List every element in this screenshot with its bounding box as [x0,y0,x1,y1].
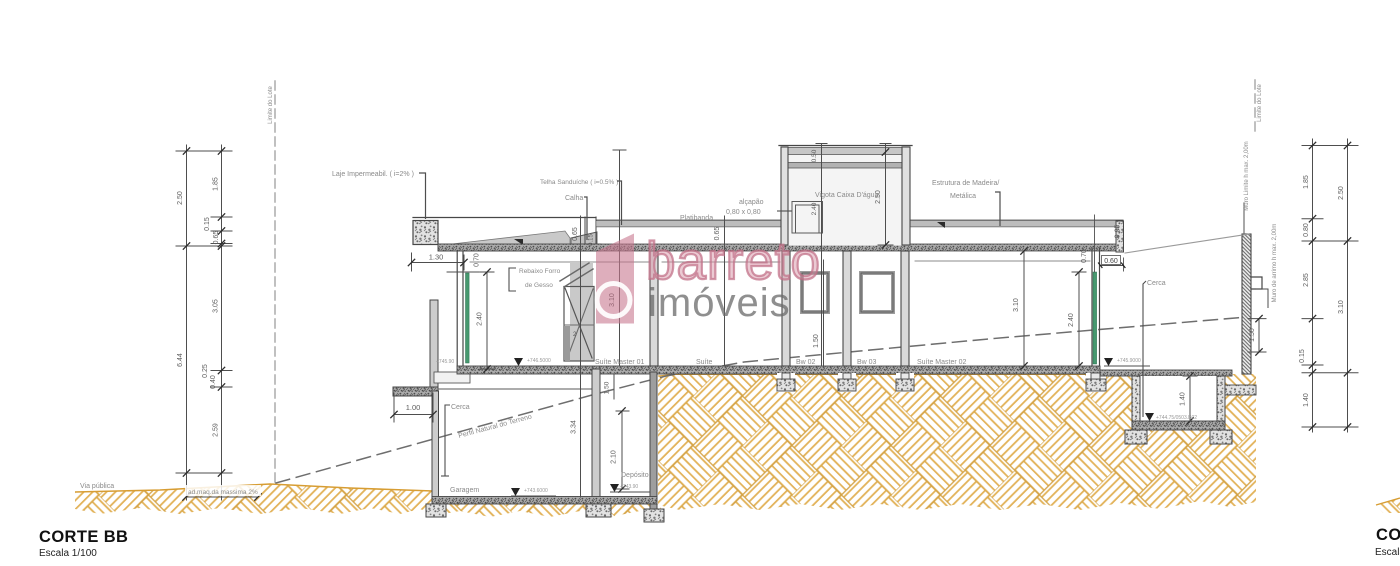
svg-text:2.85: 2.85 [1303,273,1310,287]
svg-text:1.40: 1.40 [1303,393,1310,407]
svg-text:Laje Impermeabil. ( i=2% ): Laje Impermeabil. ( i=2% ) [332,171,414,178]
svg-text:1.30: 1.30 [429,253,444,262]
svg-text:0.70: 0.70 [474,253,481,267]
svg-text:CO: CO [1376,526,1400,544]
svg-text:0.25: 0.25 [202,364,209,378]
svg-text:Limite do Lote: Limite do Lote [268,85,274,123]
svg-text:6.44: 6.44 [177,353,184,367]
svg-text:Escala: Escala [1375,547,1400,558]
svg-text:Garagem: Garagem [450,487,479,494]
svg-text:Muro Limite h max. 2,00m: Muro Limite h max. 2,00m [1244,141,1250,210]
svg-text:CORTE BB: CORTE BB [39,528,128,546]
svg-text:Estrutura de Madeira/: Estrutura de Madeira/ [932,180,999,187]
svg-text:1.85: 1.85 [213,177,220,191]
svg-text:0.70: 0.70 [1081,249,1088,263]
svg-text:Vigota Caixa D'água: Vigota Caixa D'água [815,192,879,199]
svg-text:Depósito: Depósito [621,472,649,479]
svg-text:0.15: 0.15 [1299,349,1306,363]
svg-text:1.50: 1.50 [1249,328,1256,342]
svg-text:3.10: 3.10 [1338,300,1345,314]
svg-text:2.40: 2.40 [811,202,818,215]
svg-text:Calha: Calha [565,195,583,202]
svg-text:imóveis: imóveis [648,281,791,325]
svg-text:0.80: 0.80 [1303,223,1310,237]
svg-text:3.34: 3.34 [571,420,578,434]
svg-text:0,80 x 0,80: 0,80 x 0,80 [726,209,761,216]
svg-text:Rebaixo Forro: Rebaixo Forro [519,268,561,275]
svg-text:Platibanda: Platibanda [680,215,713,222]
svg-text:+746.5000: +746.5000 [527,358,551,364]
svg-text:2.50: 2.50 [177,191,184,205]
svg-text:Cerca: Cerca [1147,280,1166,287]
svg-text:Cerca: Cerca [451,404,470,411]
svg-text:2.40: 2.40 [1068,313,1075,327]
svg-text:ad.maq.da massima 2%: ad.maq.da massima 2% [188,489,258,496]
svg-text:Via pública: Via pública [80,483,114,490]
svg-text:Limite do Lote: Limite do Lote [1257,83,1263,121]
svg-text:+743.6000: +743.6000 [524,488,548,494]
svg-text:alçapão: alçapão [739,199,764,206]
svg-text:Suíte: Suíte [696,359,712,366]
svg-text:3.10: 3.10 [1013,298,1020,312]
svg-text:Suíte Master 01: Suíte Master 01 [595,359,645,366]
svg-text:Metálica: Metálica [950,193,976,200]
svg-text:3.05: 3.05 [213,299,220,313]
svg-text:1.40: 1.40 [1180,392,1187,406]
svg-text:Muro de arrimo h max. 2,00m: Muro de arrimo h max. 2,00m [1272,224,1278,303]
svg-text:+743.90: +743.90 [620,484,638,490]
svg-text:0.15: 0.15 [589,234,595,246]
svg-text:Bw 02: Bw 02 [796,359,816,366]
svg-text:0.50: 0.50 [811,149,818,162]
svg-text:+745.90: +745.90 [436,359,454,365]
svg-text:Bw 03: Bw 03 [857,359,877,366]
svg-text:1.85: 1.85 [1303,175,1310,189]
svg-text:0.15: 0.15 [204,217,211,231]
svg-text:1.50: 1.50 [604,381,611,394]
svg-text:de Gesso: de Gesso [525,282,553,289]
svg-text:+745.9000: +745.9000 [1117,358,1141,364]
svg-text:Escala 1/100: Escala 1/100 [39,548,97,559]
svg-text:Telha Sanduíche ( i=0.5% ): Telha Sanduíche ( i=0.5% ) [540,179,618,186]
svg-text:Suíte Master 02: Suíte Master 02 [917,359,967,366]
svg-text:+744.75/0503.B02: +744.75/0503.B02 [1156,415,1197,421]
svg-text:1.50: 1.50 [813,334,820,348]
svg-text:0.40: 0.40 [210,375,217,389]
svg-text:2.40: 2.40 [477,312,484,326]
svg-text:2.10: 2.10 [611,450,618,464]
svg-text:0.65: 0.65 [572,227,579,241]
svg-text:2.50: 2.50 [1338,186,1345,200]
svg-text:1.00: 1.00 [406,403,421,412]
svg-text:0.65: 0.65 [1115,225,1122,239]
svg-text:0.60: 0.60 [1104,258,1118,265]
svg-text:2.59: 2.59 [213,423,220,437]
